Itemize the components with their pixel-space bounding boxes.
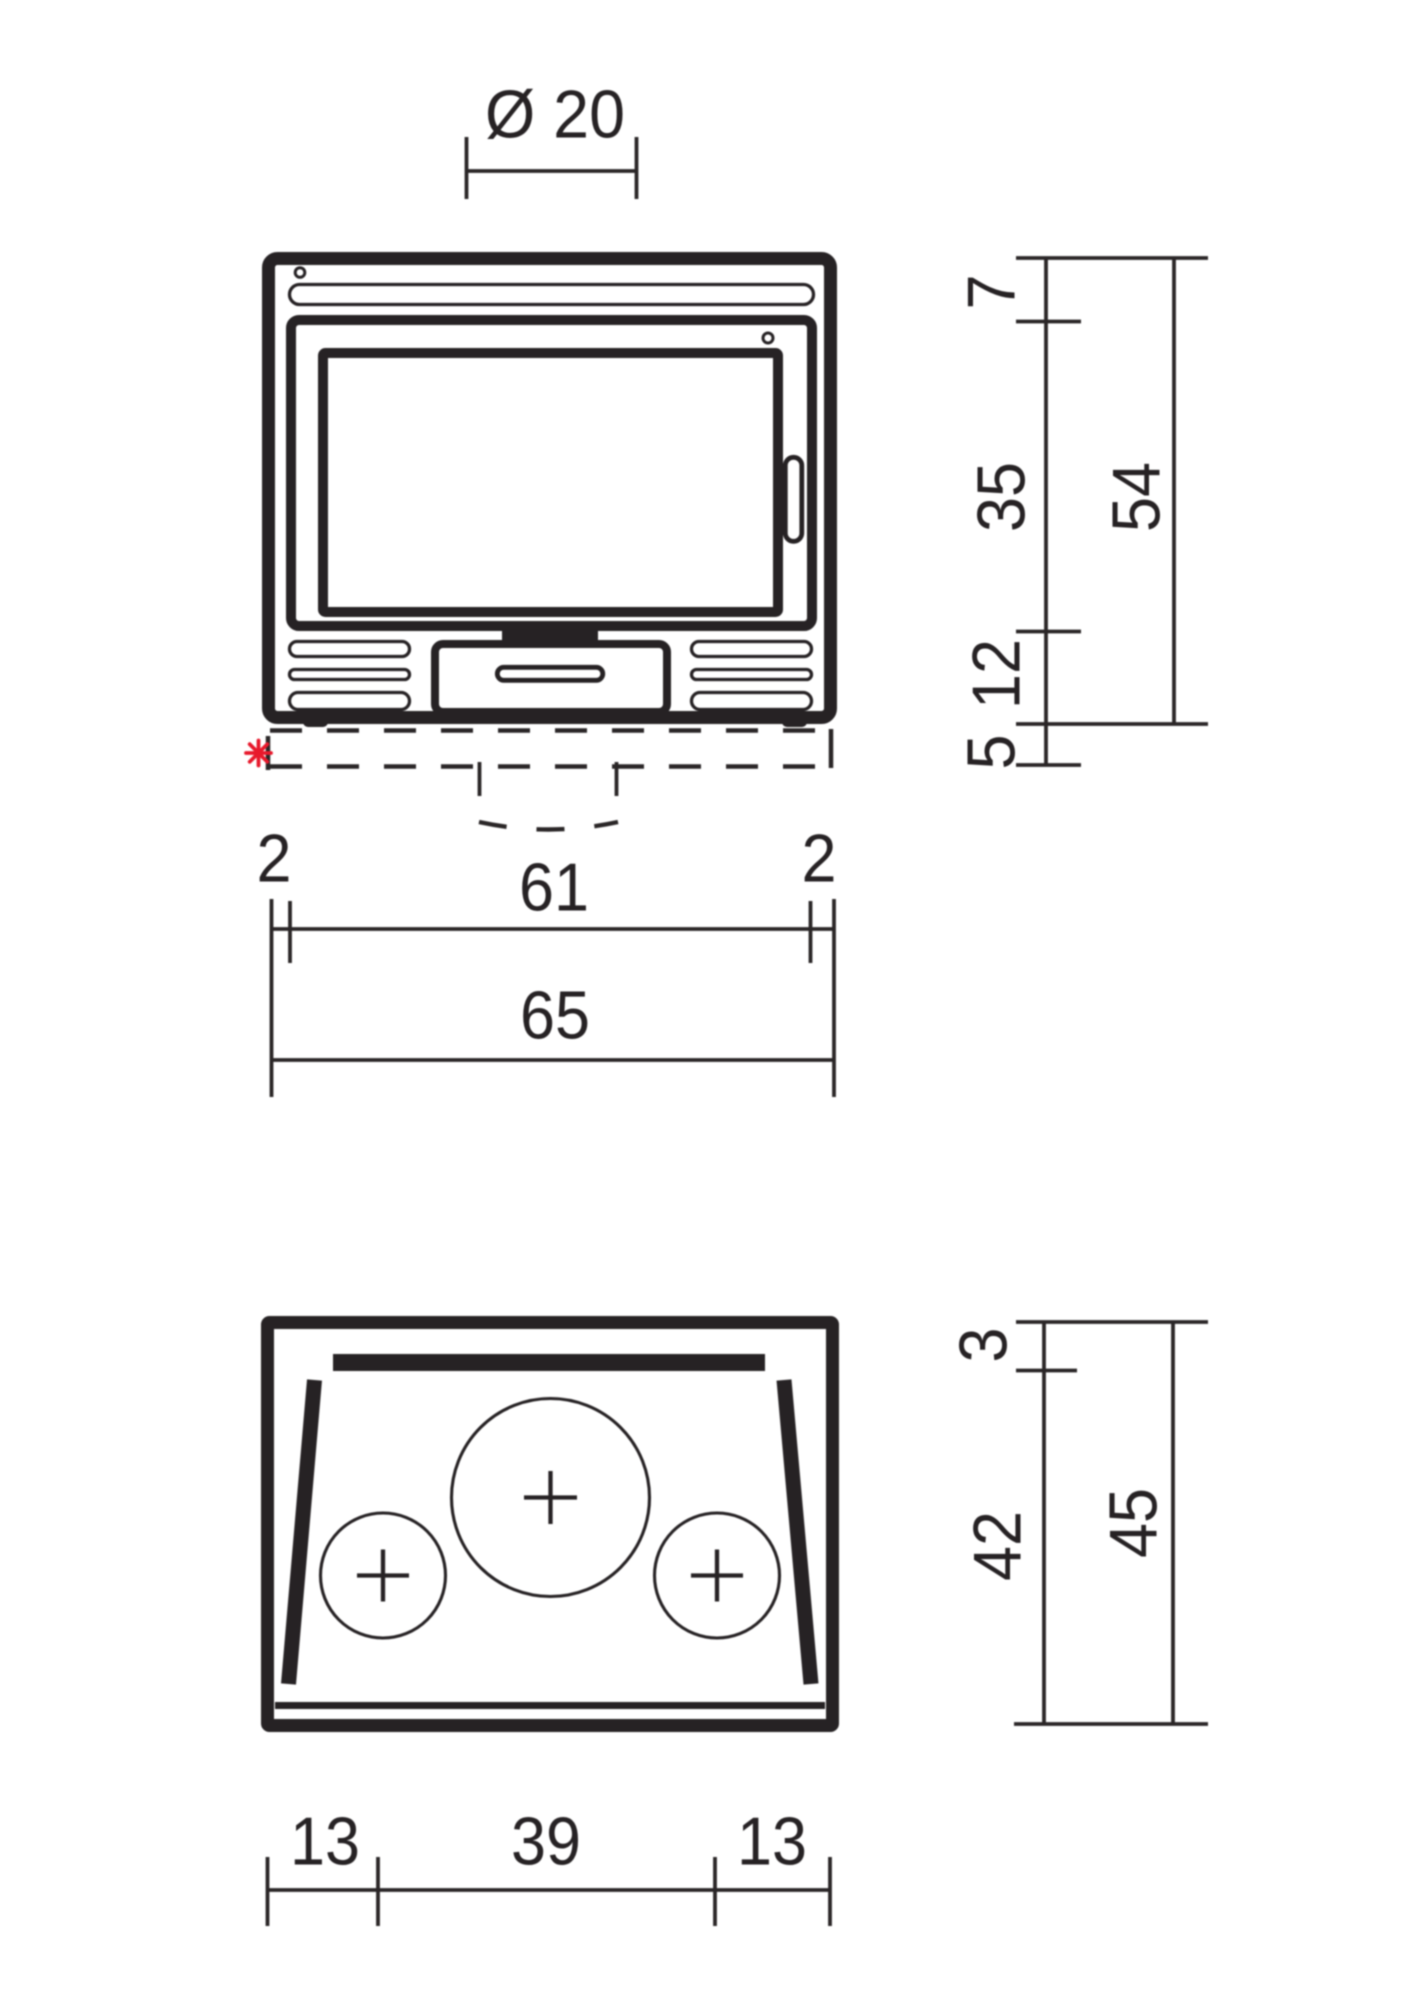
svg-text:3: 3: [945, 1328, 1021, 1363]
svg-text:54: 54: [1098, 462, 1174, 532]
svg-text:42: 42: [959, 1511, 1035, 1581]
svg-text:65: 65: [520, 978, 590, 1054]
svg-text:Ø 20: Ø 20: [485, 77, 625, 153]
svg-text:7: 7: [953, 275, 1029, 310]
svg-text:61: 61: [519, 850, 589, 926]
svg-text:35: 35: [963, 462, 1039, 532]
svg-text:13: 13: [290, 1804, 360, 1880]
svg-text:2: 2: [257, 821, 292, 897]
svg-text:39: 39: [511, 1804, 581, 1880]
svg-text:2: 2: [802, 821, 837, 897]
svg-text:13: 13: [737, 1804, 807, 1880]
svg-text:5: 5: [953, 735, 1029, 770]
svg-text:45: 45: [1095, 1488, 1171, 1558]
svg-text:12: 12: [958, 639, 1034, 709]
